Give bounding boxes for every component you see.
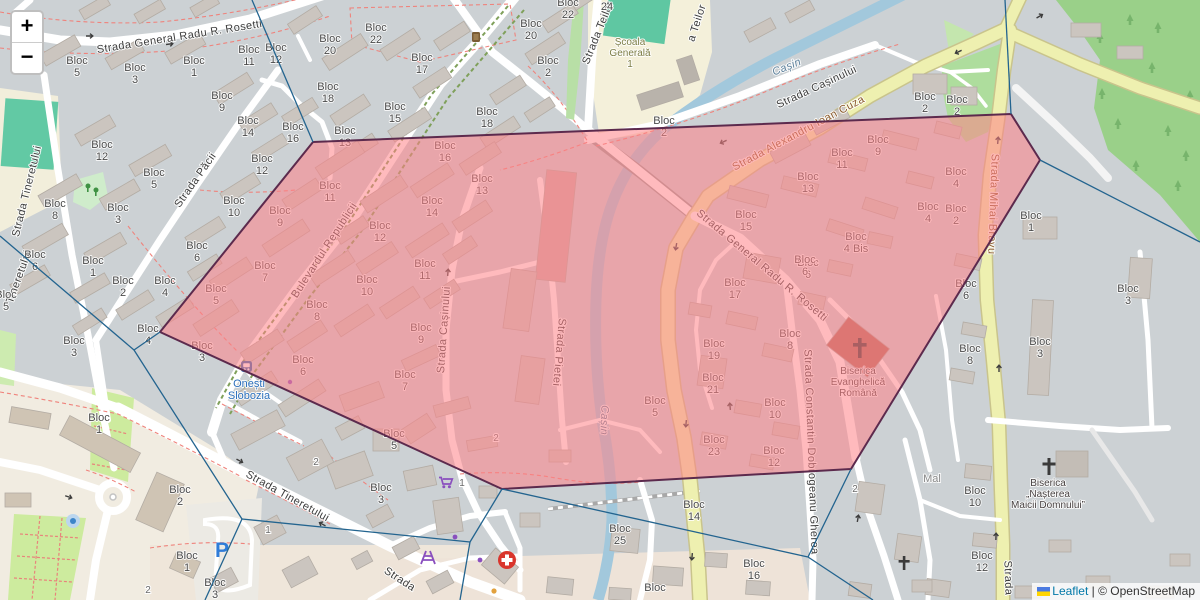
svg-text:Mal: Mal (923, 473, 941, 485)
svg-text:1: 1 (265, 525, 271, 536)
svg-text:2: 2 (852, 484, 858, 495)
svg-text:1: 1 (459, 478, 465, 489)
svg-text:OneștiSlobozia: OneștiSlobozia (228, 378, 271, 402)
svg-text:Strada: Strada (1001, 560, 1014, 596)
svg-text:2: 2 (313, 457, 319, 468)
svg-text:2: 2 (145, 585, 151, 596)
